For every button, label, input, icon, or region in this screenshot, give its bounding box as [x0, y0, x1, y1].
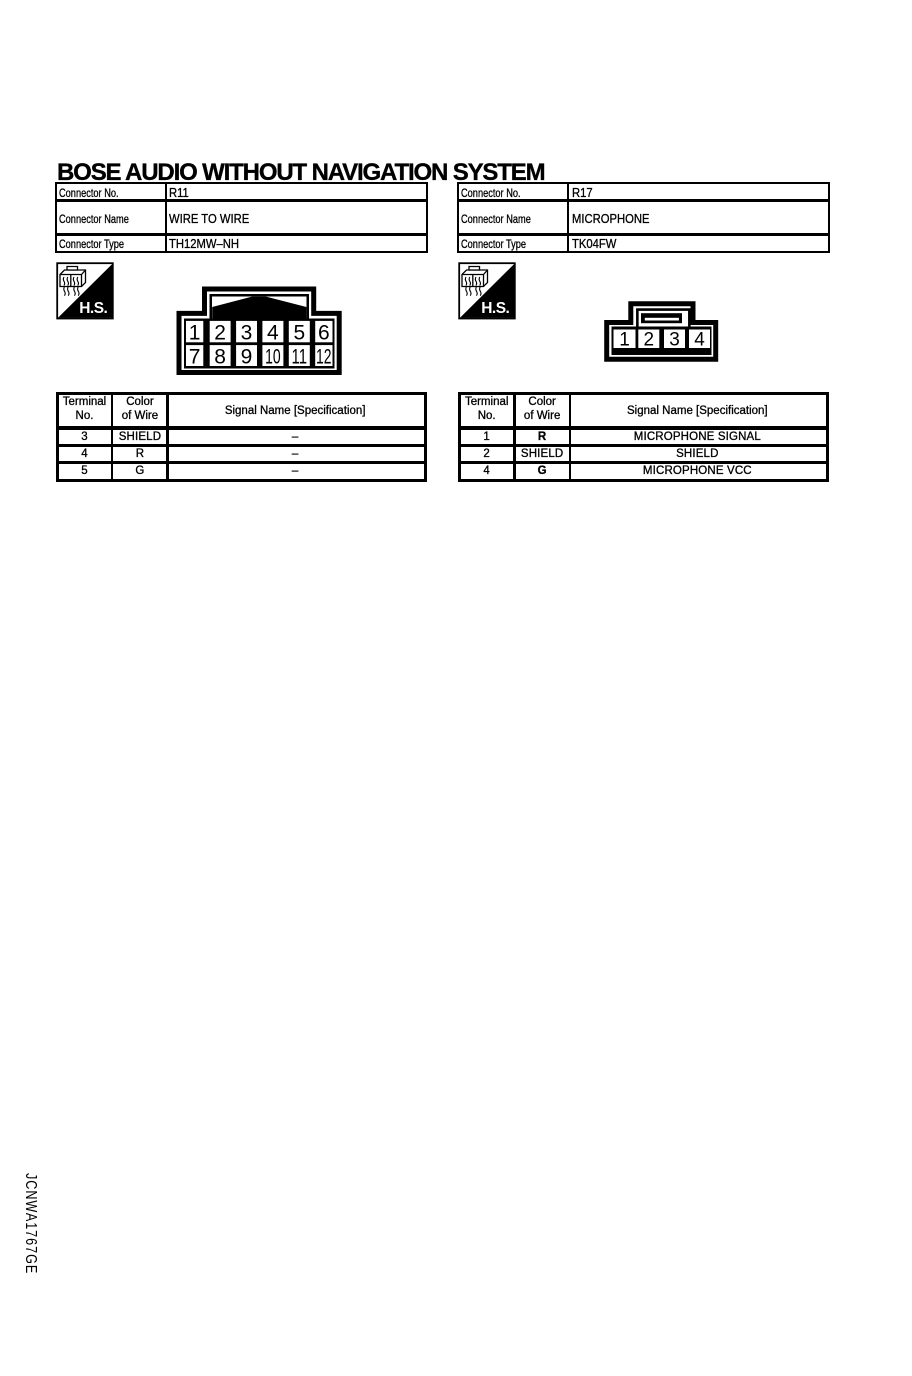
- svg-text:6: 6: [318, 322, 330, 345]
- svg-text:1: 1: [619, 330, 630, 351]
- svg-text:9: 9: [241, 346, 253, 369]
- svg-text:10: 10: [265, 346, 281, 369]
- svg-text:H.S.: H.S.: [79, 300, 107, 317]
- svg-text:H.S.: H.S.: [481, 300, 509, 317]
- svg-text:4: 4: [267, 322, 279, 345]
- svg-text:4: 4: [694, 330, 705, 351]
- svg-text:5: 5: [293, 322, 305, 345]
- svg-text:1: 1: [189, 322, 201, 345]
- svg-text:3: 3: [241, 322, 253, 345]
- svg-text:2: 2: [644, 330, 655, 351]
- svg-text:3: 3: [669, 330, 680, 351]
- svg-text:11: 11: [292, 346, 308, 369]
- svg-text:8: 8: [214, 346, 226, 369]
- svg-text:12: 12: [316, 346, 332, 369]
- svg-text:7: 7: [189, 346, 201, 369]
- svg-text:2: 2: [214, 322, 226, 345]
